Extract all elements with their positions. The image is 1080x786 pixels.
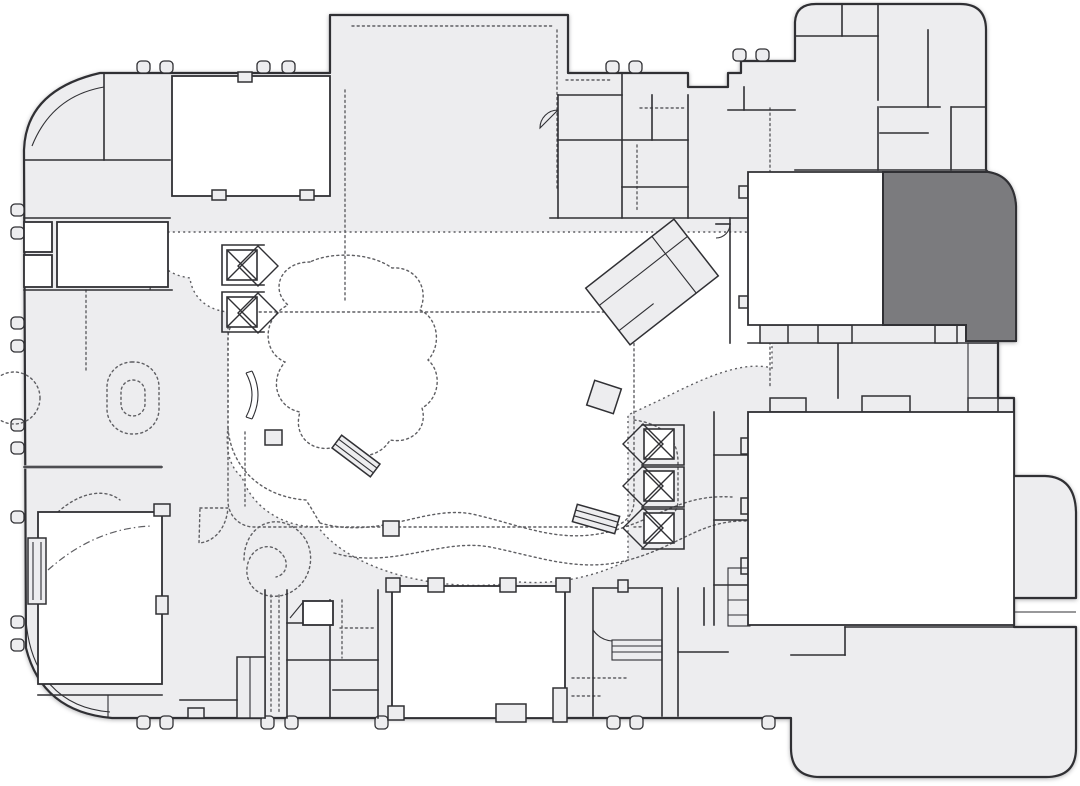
floor-plan-svg	[0, 0, 1080, 786]
room-southwest-theater	[38, 512, 162, 684]
room-south-ballroom	[392, 586, 565, 718]
room-northwest-hall	[172, 76, 330, 196]
room-northeast-hall	[748, 172, 883, 325]
stage-strip	[28, 538, 46, 604]
highlighted-room[interactable]	[883, 172, 1016, 341]
room-west-storage	[57, 222, 168, 287]
floor-plan-page	[0, 0, 1080, 786]
room-east-ballroom	[748, 412, 1014, 625]
